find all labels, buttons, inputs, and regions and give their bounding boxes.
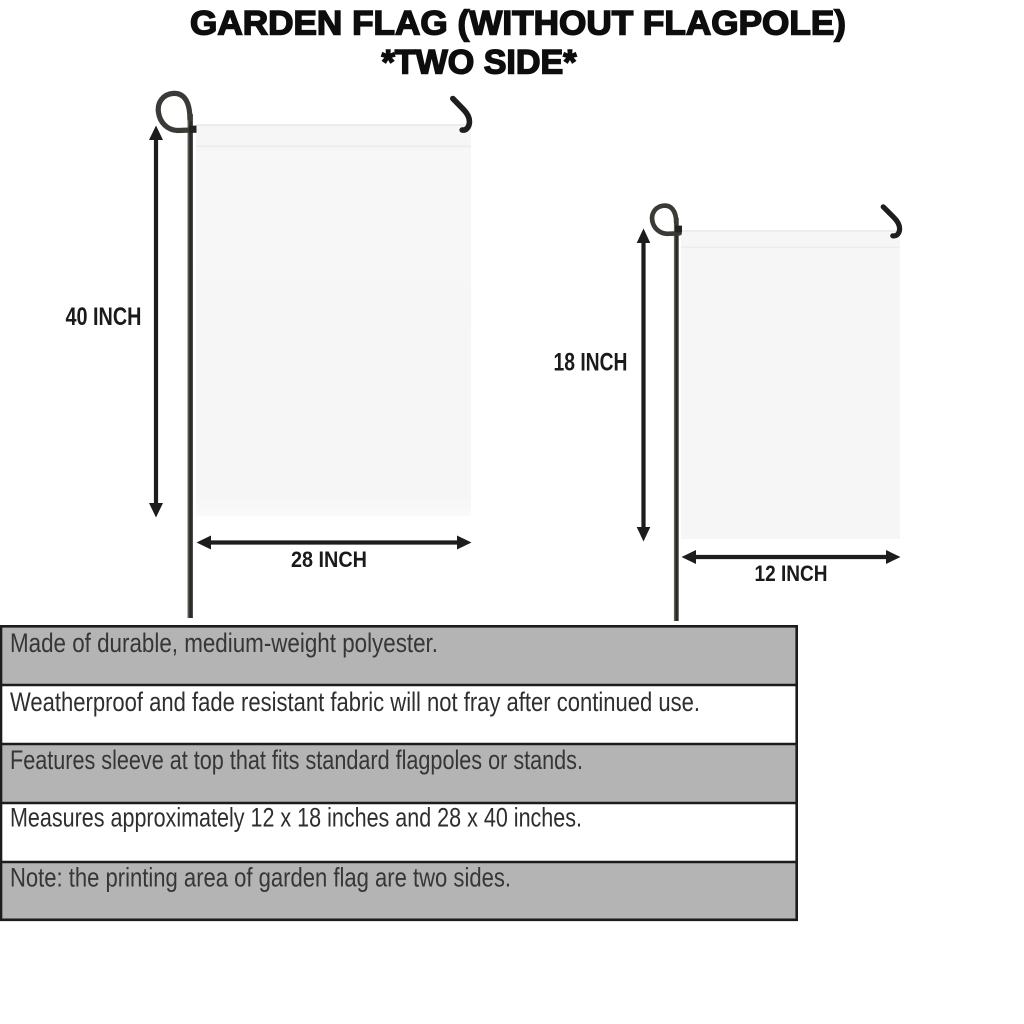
svg-text:Weatherproof and fade resistan: Weatherproof and fade resistant fabric w… — [10, 687, 700, 717]
svg-text:GARDEN FLAG (WITHOUT FLAGPOLE): GARDEN FLAG (WITHOUT FLAGPOLE) — [190, 5, 846, 43]
svg-text:*TWO SIDE*: *TWO SIDE* — [382, 44, 578, 82]
svg-text:18 INCH: 18 INCH — [554, 349, 628, 376]
svg-text:Note: the printing area of gar: Note: the printing area of garden flag a… — [10, 863, 511, 893]
svg-text:Features sleeve at top that fi: Features sleeve at top that fits standar… — [10, 745, 583, 775]
svg-text:40 INCH: 40 INCH — [66, 304, 142, 331]
svg-text:28 INCH: 28 INCH — [291, 547, 367, 572]
svg-text:12 INCH: 12 INCH — [755, 561, 828, 586]
svg-text:Measures approximately 12 x 18: Measures approximately 12 x 18 inches an… — [10, 803, 582, 833]
svg-text:Made of durable, medium-weight: Made of durable, medium-weight polyester… — [10, 628, 438, 658]
